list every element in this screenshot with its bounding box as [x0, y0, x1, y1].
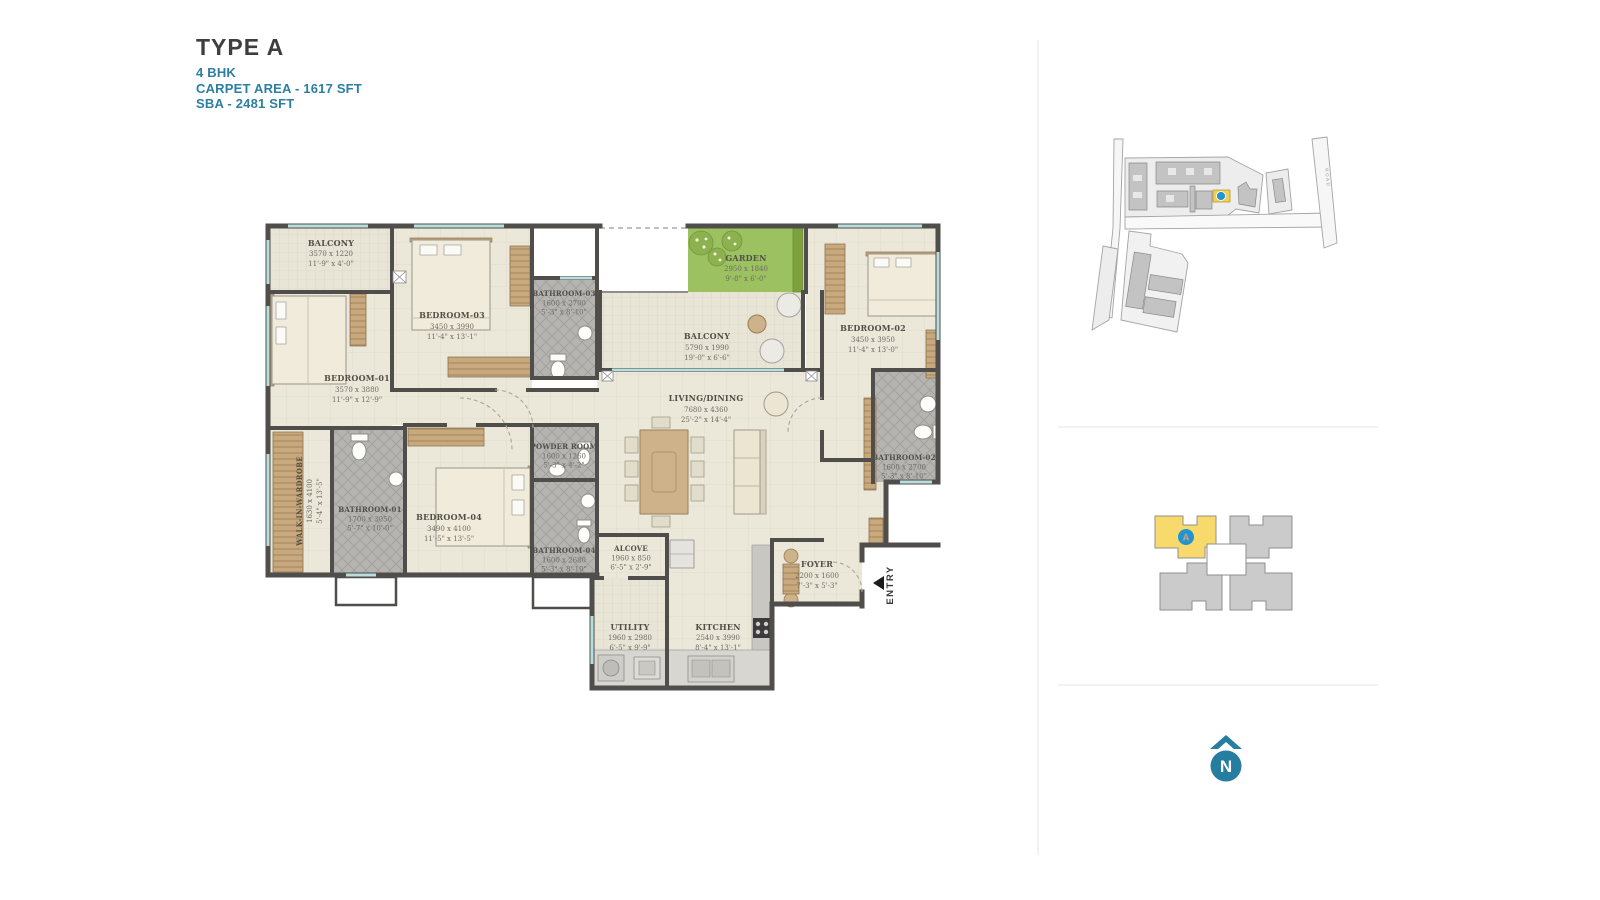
north-indicator: N — [1210, 735, 1242, 782]
desk-bedroom-02 — [825, 244, 845, 314]
room-dim-ft: 5'-3" x 8'-10" — [881, 473, 927, 481]
basin-icon — [581, 494, 595, 508]
fridge — [670, 540, 694, 568]
room-name: BEDROOM-01 — [324, 373, 390, 383]
room-dim-mm: 3570 x 3880 — [335, 386, 379, 394]
dresser-bedroom-03 — [510, 246, 530, 306]
room-dim-ft: 5'-4" x 13'-5" — [316, 478, 324, 524]
room-name: LIVING/DINING — [669, 393, 744, 403]
door-landing-2 — [533, 577, 591, 608]
room-dim-mm: 2540 x 3990 — [696, 634, 740, 642]
room-name: BATHROOM-03 — [532, 289, 595, 298]
room-dim-mm: 3450 x 3950 — [851, 336, 895, 344]
room-dim-mm: 1600 x 1260 — [542, 453, 586, 461]
room-dim-mm: 1600 x 2680 — [542, 557, 586, 565]
room-name: UTILITY — [610, 622, 649, 632]
room-dim-ft: 19'-0" x 6'-6" — [684, 354, 730, 362]
room-dim-ft: 6'-5" x 2'-9" — [610, 564, 651, 572]
washing-machine — [598, 655, 624, 681]
room-name: GARDEN — [725, 253, 766, 263]
room-label-balcony-top: BALCONY 3570 x 1220 11'-9" x 4'-0" — [308, 238, 354, 268]
room-dim-mm: 1630 x 4100 — [306, 479, 314, 523]
room-name: WALK-IN-WARDROBE — [295, 456, 304, 547]
room-label-foyer: FOYER 2200 x 1600 7'-3" x 5'-3" — [795, 559, 839, 590]
duct — [534, 228, 595, 276]
room-dim-ft: 11'-4" x 13'-1" — [427, 333, 477, 341]
room-name: KITCHEN — [695, 622, 740, 632]
dresser-bedroom-01 — [350, 294, 366, 346]
room-dim-ft: 6'-5" x 9'-9" — [609, 644, 650, 652]
room-name: POWDER ROOM — [531, 442, 598, 451]
room-label-utility: UTILITY 1960 x 2980 6'-5" x 9'-9" — [608, 622, 652, 652]
corridor-floor — [392, 390, 597, 425]
room-dim-mm: 1960 x 850 — [611, 555, 651, 563]
room-dim-mm: 7680 x 4360 — [684, 406, 728, 414]
bed-bedroom-02 — [866, 252, 938, 316]
room-label-garden: GARDEN 2950 x 1840 9'-8" x 6'-0" — [724, 253, 768, 283]
entry-arrow-icon — [873, 576, 884, 590]
room-name: BALCONY — [308, 238, 354, 248]
room-dim-mm: 1700 x 3050 — [348, 516, 392, 524]
room-name: BALCONY — [684, 331, 730, 341]
room-dim-mm: 1600 x 2700 — [882, 464, 926, 472]
room-dim-ft: 11'-4" x 13'-0" — [848, 346, 898, 354]
entry-label: ENTRY — [885, 565, 896, 604]
garden-hedge — [793, 226, 803, 292]
page: TYPE A 4 BHK CARPET AREA - 1617 SFT SBA … — [0, 0, 1600, 900]
site-tower-marker-icon — [1217, 192, 1226, 201]
room-name: BATHROOM-04 — [532, 546, 595, 555]
room-dim-mm: 3450 x 3990 — [430, 323, 474, 331]
door-landing-1 — [336, 577, 396, 605]
room-dim-ft: 7'-3" x 5'-3" — [796, 582, 837, 590]
room-dim-ft: 11'-9" x 4'-0" — [308, 260, 354, 268]
room-name: BEDROOM-03 — [419, 310, 485, 320]
room-dim-mm: 1600 x 2700 — [542, 300, 586, 308]
room-name: FOYER — [801, 559, 833, 569]
kitchen-sink — [688, 656, 734, 682]
bathroom-01-floor — [332, 428, 406, 575]
room-dim-ft: 11'-5" x 13'-5" — [424, 535, 474, 543]
armchair — [764, 392, 788, 416]
room-dim-ft: 11'-9" x 12'-9" — [332, 396, 382, 404]
room-dim-ft: 5'-3" x 8'-10" — [541, 566, 587, 574]
main-graphic: BALCONY 3570 x 1220 11'-9" x 4'-0" BEDRO… — [0, 0, 1600, 900]
toilet-icon — [578, 527, 590, 543]
toilet-icon — [914, 425, 932, 439]
room-dim-mm: 2200 x 1600 — [795, 572, 839, 580]
room-label-balcony-main: BALCONY 5790 x 1990 19'-0" x 6'-6" — [684, 331, 730, 362]
room-dim-mm: 3490 x 4100 — [427, 525, 471, 533]
toilet-tank-bath03 — [550, 354, 566, 361]
basin-icon — [578, 326, 592, 340]
room-dim-ft: 9'-8" x 6'-0" — [725, 275, 766, 283]
room-dim-ft: 5'-3" x 8'-10" — [541, 309, 587, 317]
room-name: BEDROOM-02 — [840, 323, 906, 333]
basin-icon — [920, 396, 936, 412]
room-dim-ft: 25'-2" x 14'-4" — [681, 416, 731, 424]
site-map: ROAD — [1092, 137, 1337, 332]
room-name: BEDROOM-04 — [416, 512, 482, 522]
wardrobe-bedroom-04 — [408, 428, 484, 446]
balcony-top-floor — [268, 226, 392, 292]
room-label-alcove: ALCOVE 1960 x 850 6'-5" x 2'-9" — [610, 544, 651, 572]
key-plan-core — [1207, 544, 1246, 575]
utility-sink — [634, 657, 660, 679]
sofa — [734, 430, 766, 514]
key-plan: A — [1155, 516, 1292, 610]
toilet-icon — [352, 442, 366, 460]
toilet-tank-bath04 — [577, 520, 591, 526]
room-name: BATHROOM-01 — [338, 505, 401, 514]
unit-marker-label: A — [1183, 533, 1190, 543]
room-dim-mm: 2950 x 1840 — [724, 265, 768, 273]
floor-plan: BALCONY 3570 x 1220 11'-9" x 4'-0" BEDRO… — [268, 226, 939, 688]
room-dim-ft: 5'-7" x 10'-0" — [347, 525, 393, 533]
shoe-cabinet — [869, 518, 883, 544]
basin-icon — [389, 472, 403, 486]
site-road-right — [1312, 137, 1337, 248]
room-label-kitchen: KITCHEN 2540 x 3990 8'-4" x 13'-1" — [695, 622, 741, 652]
north-label: N — [1220, 757, 1232, 776]
room-dim-ft: 5'-3" x 4'-2" — [543, 462, 584, 470]
room-dim-mm: 3570 x 1220 — [309, 250, 353, 258]
room-name: ALCOVE — [613, 544, 648, 553]
wardrobe-bedroom-03 — [448, 357, 532, 377]
toilet-tank-bath01 — [351, 434, 368, 441]
room-dim-mm: 5790 x 1990 — [685, 344, 729, 352]
hob — [753, 618, 771, 638]
room-name: BATHROOM-02 — [872, 453, 935, 462]
room-dim-ft: 8'-4" x 13'-1" — [695, 644, 741, 652]
room-dim-mm: 1960 x 2980 — [608, 634, 652, 642]
